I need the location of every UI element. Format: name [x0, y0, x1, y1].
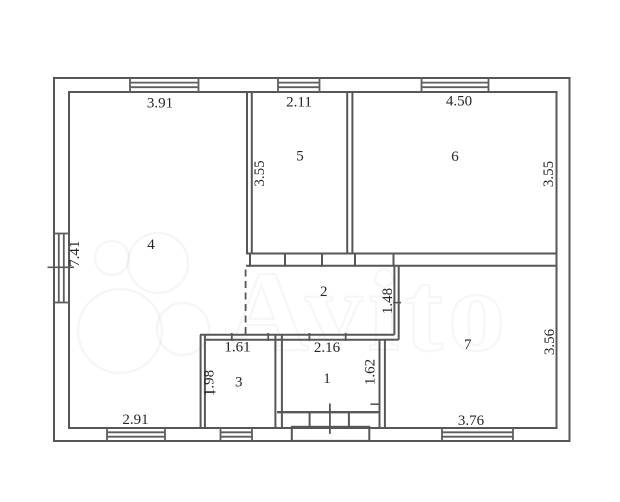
- svg-text:3: 3: [235, 375, 243, 391]
- svg-text:3.56: 3.56: [542, 328, 558, 355]
- svg-text:2.16: 2.16: [314, 340, 341, 356]
- svg-text:1.61: 1.61: [224, 340, 250, 356]
- svg-text:1: 1: [323, 371, 331, 387]
- svg-text:Avito: Avito: [226, 248, 511, 375]
- svg-text:2.91: 2.91: [122, 412, 148, 428]
- svg-text:6: 6: [451, 149, 459, 165]
- svg-text:2: 2: [320, 284, 328, 300]
- svg-text:5: 5: [296, 149, 304, 165]
- svg-text:4: 4: [147, 237, 155, 253]
- svg-text:3.55: 3.55: [541, 161, 557, 187]
- svg-text:7.41: 7.41: [67, 241, 83, 267]
- svg-text:4.50: 4.50: [446, 94, 472, 110]
- svg-text:3.91: 3.91: [147, 96, 173, 112]
- svg-text:1.62: 1.62: [363, 359, 379, 385]
- svg-text:3.76: 3.76: [458, 413, 485, 429]
- svg-text:3.55: 3.55: [252, 160, 268, 186]
- svg-text:1.48: 1.48: [380, 288, 396, 314]
- svg-text:2.11: 2.11: [286, 95, 312, 111]
- svg-text:1.98: 1.98: [202, 370, 218, 396]
- svg-text:7: 7: [464, 337, 472, 353]
